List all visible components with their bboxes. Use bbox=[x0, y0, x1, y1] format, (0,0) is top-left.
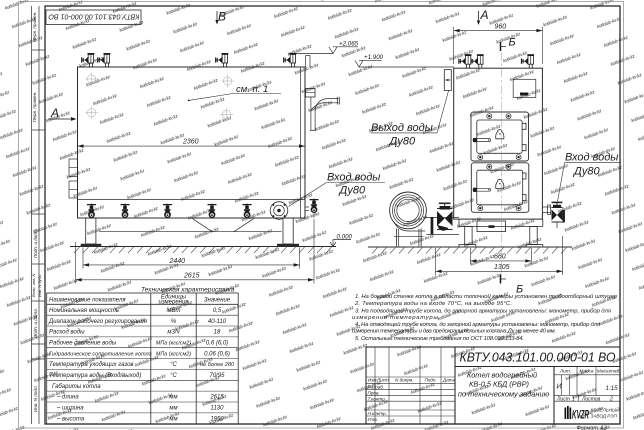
svg-text:3. На подводящей трубе котла,: 3. На подводящей трубе котла, до запорно… bbox=[355, 307, 612, 314]
svg-text:Масштаб: Масштаб bbox=[597, 369, 620, 375]
svg-text:КОТЕЛЬНЫЙ: КОТЕЛЬНЫЙ bbox=[591, 406, 621, 413]
svg-text:КВТУ.043.101.00.000-01 ВО: КВТУ.043.101.00.000-01 ВО bbox=[48, 13, 139, 22]
svg-text:Разраб.: Разраб. bbox=[368, 384, 385, 389]
svg-text:1130: 1130 bbox=[211, 406, 225, 412]
svg-text:2440: 2440 bbox=[169, 258, 186, 265]
svg-text:40-110: 40-110 bbox=[208, 319, 227, 325]
svg-text:Утв.: Утв. bbox=[368, 417, 378, 422]
svg-text:%: % bbox=[171, 319, 177, 325]
svg-text:1:15: 1:15 bbox=[606, 385, 619, 392]
svg-text:0,06 (0,6): 0,06 (0,6) bbox=[204, 351, 230, 357]
svg-text:измерения температуры.: измерения температуры. bbox=[352, 315, 440, 321]
svg-text:В: В bbox=[218, 10, 226, 24]
svg-text:по техническому заданию: по техническому заданию bbox=[458, 389, 550, 398]
svg-text:Номинальная мощность: Номинальная мощность bbox=[49, 308, 119, 314]
svg-text:измерения: измерения bbox=[158, 300, 189, 306]
svg-text:А3: А3 bbox=[599, 426, 607, 430]
svg-text:4. На отводящей трубе котла, д: 4. На отводящей трубе котла, до запорной… bbox=[355, 321, 601, 328]
svg-text:Вход воды: Вход воды bbox=[327, 172, 380, 184]
svg-text:Масса: Масса bbox=[579, 369, 594, 375]
svg-text:Температура воды (Вход/выход): Температура воды (Вход/выход) bbox=[49, 373, 141, 379]
svg-text:960: 960 bbox=[495, 23, 507, 30]
svg-text:Наименование показателя: Наименование показателя bbox=[49, 297, 126, 303]
svg-text:5. Остальные технические требо: 5. Остальные технические требования по О… bbox=[355, 336, 524, 342]
svg-text:Ду80: Ду80 bbox=[388, 136, 416, 148]
svg-text:1950: 1950 bbox=[210, 416, 224, 422]
svg-text:660: 660 bbox=[494, 254, 506, 261]
svg-text:Лист: Лист bbox=[556, 396, 570, 402]
svg-text:ЗАВОД РЭП: ЗАВОД РЭП bbox=[591, 414, 618, 419]
svg-text:2360: 2360 bbox=[182, 138, 199, 145]
svg-text:– высота: – высота bbox=[56, 416, 85, 422]
svg-text:+2.065: +2.065 bbox=[339, 40, 359, 47]
svg-text:А: А bbox=[50, 106, 59, 120]
svg-text:Т.контр.: Т.контр. bbox=[368, 396, 387, 401]
svg-text:Значение: Значение bbox=[204, 297, 231, 303]
svg-text:м3/ч: м3/ч bbox=[167, 330, 179, 336]
svg-text:Рабочее давление воды: Рабочее давление воды bbox=[49, 341, 117, 347]
svg-text:1: 1 bbox=[572, 396, 575, 402]
svg-text:°С: °С bbox=[170, 362, 177, 368]
svg-text:– ширина: – ширина bbox=[56, 406, 84, 412]
svg-text:Ду80: Ду80 bbox=[572, 165, 600, 177]
svg-text:2. Температура воды на входе 7: 2. Температура воды на входе 70°С, на вы… bbox=[354, 301, 512, 307]
svg-text:Ду80: Ду80 bbox=[338, 185, 366, 197]
svg-text:Выход воды: Выход воды bbox=[371, 122, 433, 134]
svg-text:Перв. примен.: Перв. примен. bbox=[32, 91, 37, 122]
svg-text:Техническая характеристика: Техническая характеристика bbox=[141, 287, 235, 294]
svg-text:КВТУ.043.101.00.000-01 ВО: КВТУ.043.101.00.000-01 ВО bbox=[460, 350, 616, 365]
svg-text:Расход воды: Расход воды bbox=[49, 330, 85, 336]
svg-text:0,6 (6,0): 0,6 (6,0) bbox=[206, 341, 228, 347]
svg-text:0,5: 0,5 bbox=[213, 308, 222, 314]
svg-text:Формат: Формат bbox=[577, 426, 599, 430]
svg-text:2: 2 bbox=[609, 396, 613, 402]
svg-text:Подп.: Подп. bbox=[425, 378, 437, 383]
svg-text:Инв. N подл.: Инв. N подл. bbox=[33, 385, 38, 412]
svg-text:КВ-0,5 КБД (РВР): КВ-0,5 КБД (РВР) bbox=[469, 380, 530, 389]
svg-text:0.000: 0.000 bbox=[337, 233, 353, 240]
svg-text:+1.900: +1.900 bbox=[364, 54, 384, 61]
svg-text:KVZR: KVZR bbox=[572, 410, 589, 422]
svg-text:мм: мм bbox=[169, 395, 177, 401]
svg-text:Лит.: Лит. bbox=[559, 369, 571, 375]
svg-text:не более 280: не более 280 bbox=[200, 362, 235, 368]
svg-text:Диапазон рабочего регулировани: Диапазон рабочего регулирования bbox=[48, 319, 148, 325]
svg-text:Б: Б bbox=[509, 37, 516, 49]
svg-text:МПа (кгс/см2): МПа (кгс/см2) bbox=[156, 351, 191, 357]
svg-text:70/95: 70/95 bbox=[209, 373, 225, 379]
svg-text:2615: 2615 bbox=[183, 273, 200, 280]
svg-text:Вход воды: Вход воды bbox=[565, 152, 618, 164]
svg-text:Дата: Дата bbox=[442, 378, 456, 383]
svg-text:Лист: Лист bbox=[376, 378, 389, 383]
svg-text:Перв. примен.: Перв. примен. bbox=[32, 11, 37, 42]
svg-text:N докум.: N докум. bbox=[395, 378, 414, 383]
svg-text:Подп. и дата: Подп. и дата bbox=[33, 309, 38, 338]
svg-text:Температура уходящих газов: Температура уходящих газов bbox=[49, 362, 134, 368]
svg-text:18: 18 bbox=[214, 330, 221, 336]
svg-text:Инв. N дубл.: Инв. N дубл. bbox=[37, 274, 42, 297]
svg-text:мм: мм bbox=[169, 406, 177, 412]
svg-text:А: А bbox=[480, 8, 489, 22]
svg-text:Пров.: Пров. bbox=[368, 390, 380, 395]
svg-text:Н.контр.: Н.контр. bbox=[368, 411, 387, 416]
svg-text:Габариты котла: Габариты котла bbox=[52, 384, 101, 390]
svg-text:2615: 2615 bbox=[209, 395, 224, 401]
svg-text:Подп. и дата: Подп. и дата bbox=[33, 229, 38, 258]
svg-text:°С: °С bbox=[170, 373, 177, 379]
svg-text:мм: мм bbox=[169, 416, 177, 422]
svg-text:Листов: Листов bbox=[581, 396, 601, 402]
svg-text:– длина: – длина bbox=[56, 395, 79, 401]
svg-text:Гидравлическое сопротивление к: Гидравлическое сопротивление котла bbox=[49, 351, 152, 357]
svg-text:МПа (кгс/см2): МПа (кгс/см2) bbox=[156, 341, 191, 347]
svg-text:Котел водогрейный: Котел водогрейный bbox=[467, 370, 537, 379]
svg-text:1305: 1305 bbox=[494, 264, 510, 271]
svg-text:см. п. 1: см. п. 1 bbox=[236, 84, 268, 95]
svg-text:1. На боковой стенке котла в о: 1. На боковой стенке котла в области топ… bbox=[355, 293, 618, 300]
svg-text:измерения температуры и два пр: измерения температуры и два предохраните… bbox=[352, 328, 556, 334]
svg-text:Взам. инв. N: Взам. инв. N bbox=[31, 274, 36, 297]
svg-text:МВт: МВт bbox=[167, 308, 181, 314]
